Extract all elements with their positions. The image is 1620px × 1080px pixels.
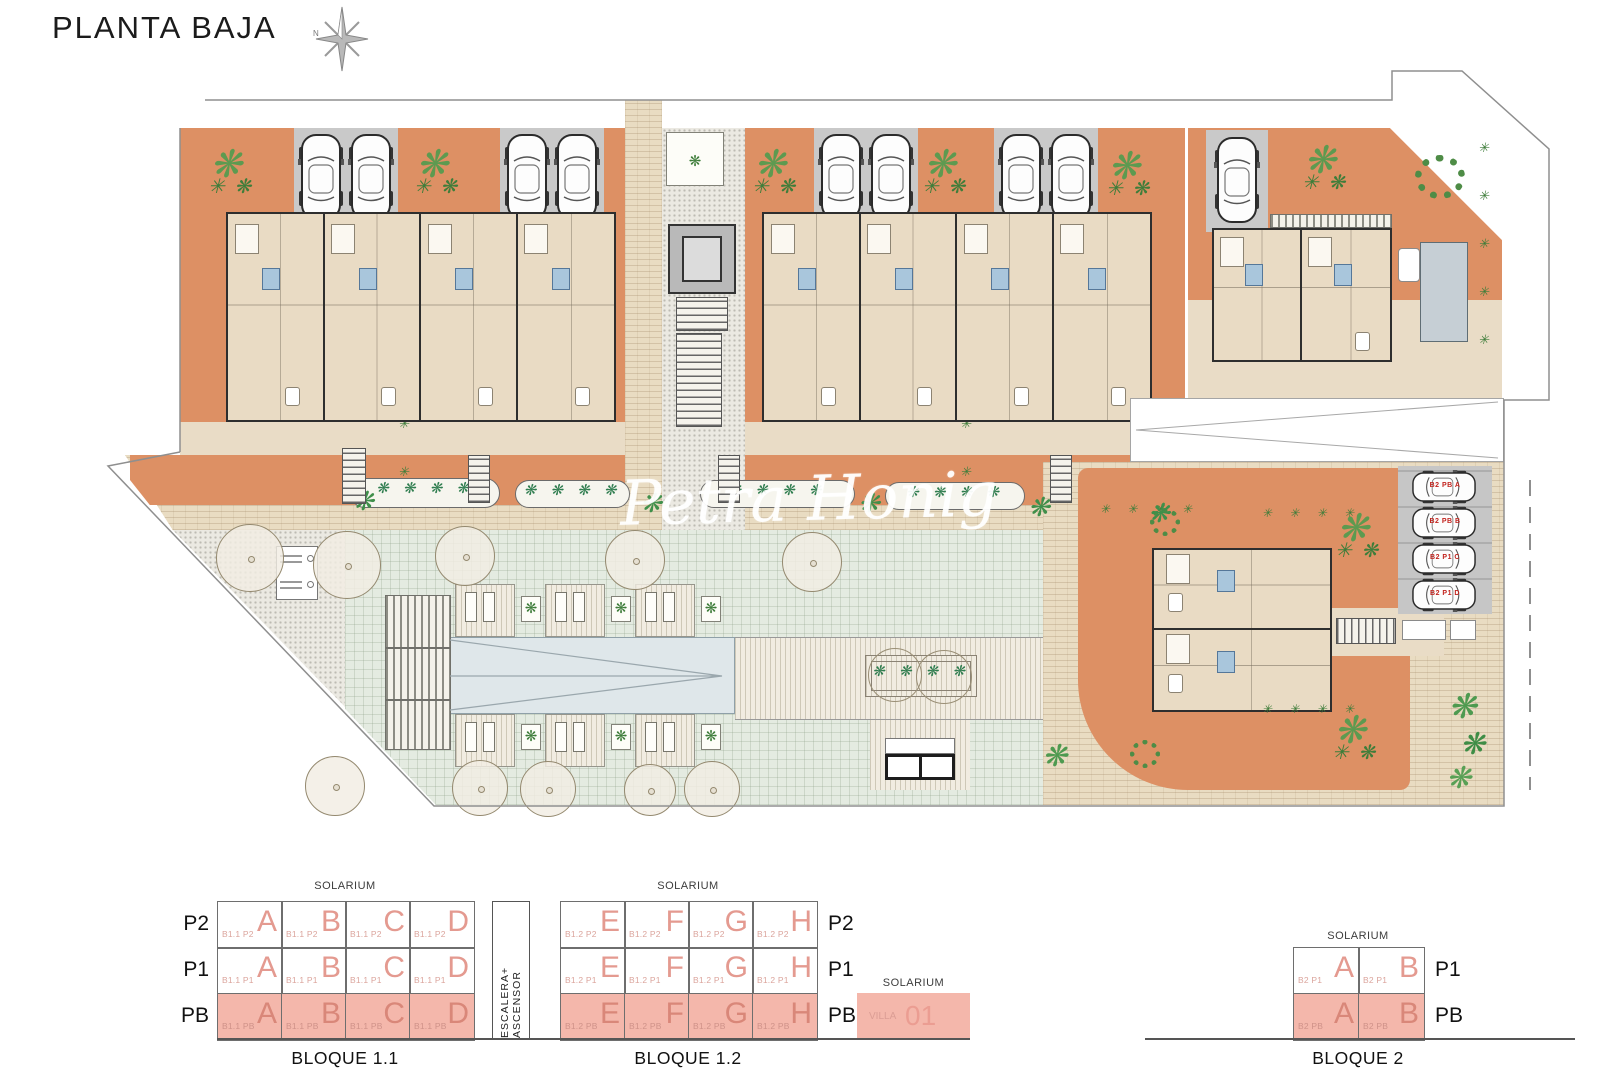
floor-plan-page: PLANTA BAJA N [0,0,1620,1080]
block-label: BLOQUE 1.2 [560,1048,816,1069]
unit-cell: B1.2 PBG [689,994,753,1040]
car-icon [818,133,864,221]
elevator-icon [668,224,736,294]
unit-B-plan [325,214,422,420]
unit-cell: B1.2 P1H [753,948,817,994]
palm-icon: ❋ [1042,742,1067,772]
villa-living [1302,230,1390,360]
tree-icon [624,764,676,816]
site-plan: ❋ ❋ B2 PB A B2 PB B B2 P1 C B2 P1 D [0,0,1620,830]
unit-A-plan [1154,550,1330,630]
parking-space-label: B2 P1 D [1413,590,1477,597]
unit-cell: B1.2 P1F [625,948,689,994]
tree-icon [313,531,381,599]
sunbed-deck [635,584,695,637]
shower-area [885,738,955,754]
unit-cell: B1.1 P1D [410,948,474,994]
planter-icon [611,596,631,622]
unit-H-plan [1054,214,1151,420]
planter-icon [521,596,541,622]
palm-icon: ❋ [1448,690,1477,724]
unit-cell: B1.2 P2E [561,902,625,948]
sunbed-deck [545,714,605,767]
tree-icon [452,760,508,816]
floor-labels: P1PB [1435,947,1479,1039]
unit-B-plan [1154,630,1330,710]
unit-cell: B1.2 P2H [753,902,817,948]
planter-icon [666,132,724,186]
tree-icon [305,756,365,816]
plants-icon [1276,140,1492,160]
planter-bed [515,480,630,508]
unit-cell: B1.1 P2D [410,902,474,948]
unit-cell: B1.1 P1B [282,948,346,994]
unit-cell: B1.1 PBB [282,994,346,1040]
unit-D-plan [518,214,615,420]
unit-cell: B1.1 PBA [218,994,282,1040]
sunbed-deck [545,584,605,637]
parking-space-label: B2 P1 C [1413,554,1477,561]
driveway [1130,398,1504,462]
tree-icon [684,761,740,817]
stair-lift-label: ESCALERA+ ASCENSOR [493,902,529,1038]
tree-icon [1415,155,1465,199]
unit-F-plan [861,214,958,420]
villa-01-diagram: SOLARIUM VILLA 01 [857,993,970,1039]
ground-line [1145,1038,1575,1040]
floor-label: PB [165,993,209,1039]
bloque-1-1-building [226,212,616,422]
unit-cell: B1.1 P2B [282,902,346,948]
tree-icon [435,526,495,586]
unit-cell: B1.2 PBF [625,994,689,1040]
unit-G-plan [957,214,1054,420]
stair-lift-core: ESCALERA+ ASCENSOR [492,901,530,1039]
unit-cell: B1.2 P1E [561,948,625,994]
tree-icon [868,648,922,702]
unit-cell: B1.2 PBH [753,994,817,1040]
car-icon [298,133,344,221]
unit-cell: B2 PBA [1294,994,1359,1040]
unit-A-plan [228,214,325,420]
unit-cell: B1.2 P1G [689,948,753,994]
plants-icon [1262,700,1361,718]
unit-cell: B1.1 PBD [410,994,474,1040]
unit-cell: B2 PBB [1359,994,1424,1040]
block-label: BLOQUE 2 [1293,1048,1423,1069]
unit-table: B2 P1AB2 P1BB2 PBAB2 PBB [1293,947,1425,1041]
unit-cell: B1.2 P2F [625,902,689,948]
car-icon [1214,136,1260,224]
tree-icon [216,524,284,592]
palm-icon: ❋ [1460,730,1485,760]
villa-prefix: VILLA [869,1011,896,1022]
floor-label: P1 [1435,947,1479,993]
stairs-icon [718,455,740,503]
outdoor-table [1398,248,1420,282]
solarium-label: SOLARIUM [217,880,473,892]
solarium-label: SOLARIUM [560,880,816,892]
central-path [625,100,662,530]
planter-icon [611,724,631,750]
swimming-pool [448,637,735,714]
tree-icon [605,530,665,590]
unit-table: B1.1 P2AB1.1 P2BB1.1 P2CB1.1 P2DB1.1 P1A… [217,901,475,1041]
car-icon [868,133,914,221]
stairs-icon [1050,455,1072,503]
unit-cell: B1.1 PBC [346,994,410,1040]
ground-line [217,1038,970,1040]
unit-cell: B1.1 P2A [218,902,282,948]
stairs-icon [468,455,490,503]
pool-wc-building [885,754,955,780]
utility-box [1402,620,1446,640]
stairs-icon [1336,618,1396,644]
unit-cell: B1.2 PBE [561,994,625,1040]
villa-number: 01 [905,1000,936,1032]
utility-box [1450,620,1476,640]
unit-table: B1.2 P2EB1.2 P2FB1.2 P2GB1.2 P2HB1.2 P1E… [560,901,818,1041]
unit-cell: B2 P1A [1294,948,1359,994]
unit-E-plan [764,214,861,420]
planter-icon [701,596,721,622]
unit-cell: B1.1 P1A [218,948,282,994]
car-icon [1048,133,1094,221]
planter-bed [885,482,1025,510]
plants-icon [1262,504,1361,522]
palm-icon: ❋ [1148,500,1170,526]
car-icon [348,133,394,221]
palm-icon: ❋ [640,490,662,516]
unit-cell: B2 P1B [1359,948,1424,994]
tree-icon [782,532,842,592]
tree-icon [1130,740,1160,768]
floor-labels: P2P1PB [165,901,209,1039]
unit-cell: B1.2 P2G [689,902,753,948]
car-icon [504,133,550,221]
bloque-1-2-building [762,212,1152,422]
stairs-icon [676,333,722,427]
sunbed-deck [635,714,695,767]
parking-space-label: B2 PB B [1413,518,1477,525]
stairs-icon [676,297,728,331]
block-label: BLOQUE 1.1 [217,1048,473,1069]
car-icon [998,133,1044,221]
palm-icon: ❋ [1028,494,1050,520]
villa-room [1214,230,1302,360]
planter-icon [521,724,541,750]
floor-label: P2 [828,901,872,947]
unit-cell: B1.1 P2C [346,902,410,948]
villa-building [1212,228,1392,362]
palm-icon: ❋ [858,490,880,516]
planter-icon [701,724,721,750]
tree-icon [916,650,972,704]
stairs-icon [342,448,366,504]
unit-C-plan [421,214,518,420]
sunbed-deck [455,584,515,637]
pergola-icon [385,595,451,750]
solarium-label: SOLARIUM [1293,930,1423,942]
unit-cell: B1.1 P1C [346,948,410,994]
solarium-label: SOLARIUM [857,977,970,989]
bloque-2-building [1152,548,1332,712]
floor-label: P2 [165,901,209,947]
palm-icon: ❋ [1446,764,1471,794]
tree-icon [520,761,576,817]
floor-label: P1 [165,947,209,993]
parking-space-label: B2 PB A [1413,482,1477,489]
sunbed-deck [455,714,515,767]
car-icon [554,133,600,221]
villa-pool [1420,242,1468,342]
floor-label: PB [1435,993,1479,1039]
villa-pergola [1270,214,1392,228]
